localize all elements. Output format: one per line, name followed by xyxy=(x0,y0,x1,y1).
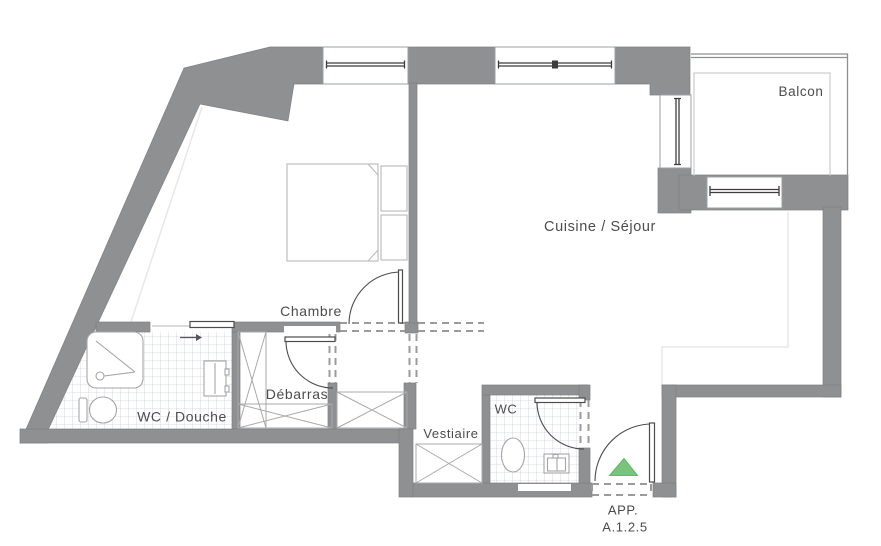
closet-debarras-wide xyxy=(238,404,332,428)
room-label-balcon: Balcon xyxy=(779,84,824,99)
closet-vestiaire xyxy=(416,444,482,483)
window-balcony-side xyxy=(660,95,691,168)
door-debarras xyxy=(285,337,335,388)
pillow xyxy=(381,215,407,260)
toilet-wc-douche xyxy=(79,397,117,423)
wall-entry-side xyxy=(662,385,676,497)
room-label-cuisine-sejour: Cuisine / Séjour xyxy=(544,219,656,235)
wall-bottom-left-band xyxy=(20,429,412,443)
wall-bottom-right xyxy=(662,385,841,397)
balcony-railing xyxy=(691,54,848,176)
wall-chambre-bottom-a xyxy=(96,322,150,332)
room-label-wc-douche: WC / Douche xyxy=(137,409,227,425)
door-chambre xyxy=(349,270,403,324)
pillow xyxy=(381,166,407,211)
floor-plan-drawing: Balcon Cuisine / Séjour Chambre WC / Dou… xyxy=(0,0,881,546)
window-chambre xyxy=(323,47,408,84)
wall-chambre-bottom-c xyxy=(405,322,418,333)
wall-right xyxy=(823,207,841,397)
wall-partition-chambre-cuisine xyxy=(409,83,417,323)
wall-wc-right-lower xyxy=(579,448,590,483)
wall-entry-bottom xyxy=(653,483,676,497)
bed xyxy=(287,164,407,261)
room-label-chambre: Chambre xyxy=(280,303,342,319)
wall-wcdouche-debarras xyxy=(232,332,240,429)
shower xyxy=(87,332,143,388)
apartment-id: APP. A.1.2.5 xyxy=(602,503,647,535)
sink-wc xyxy=(544,454,569,473)
wall-wc-top xyxy=(482,385,588,395)
wall-wc-left xyxy=(482,395,490,483)
toilet-wc xyxy=(502,438,525,472)
floor-plan-page: Balcon Cuisine / Séjour Chambre WC / Dou… xyxy=(0,0,881,546)
window-balcony-door xyxy=(707,177,782,208)
closet-debarras-tall xyxy=(238,332,266,428)
wall-vestiaire-step xyxy=(399,429,413,497)
wall-top-right-corner xyxy=(615,47,690,95)
room-label-wc: WC xyxy=(495,402,518,417)
sink-wc-douche xyxy=(204,361,229,396)
entrance-marker-icon xyxy=(610,459,638,476)
room-label-debarras: Débarras xyxy=(266,386,328,402)
closet-hall xyxy=(337,392,407,428)
storage-units xyxy=(238,332,482,483)
wall-closet-right-lower xyxy=(404,383,416,429)
apartment-id-line1: APP. xyxy=(608,503,638,518)
window-sejour-double xyxy=(495,47,615,84)
wall-top-middle xyxy=(408,47,495,84)
apartment-id-line2: A.1.2.5 xyxy=(602,520,647,535)
room-label-vestiaire: Vestiaire xyxy=(423,426,478,441)
